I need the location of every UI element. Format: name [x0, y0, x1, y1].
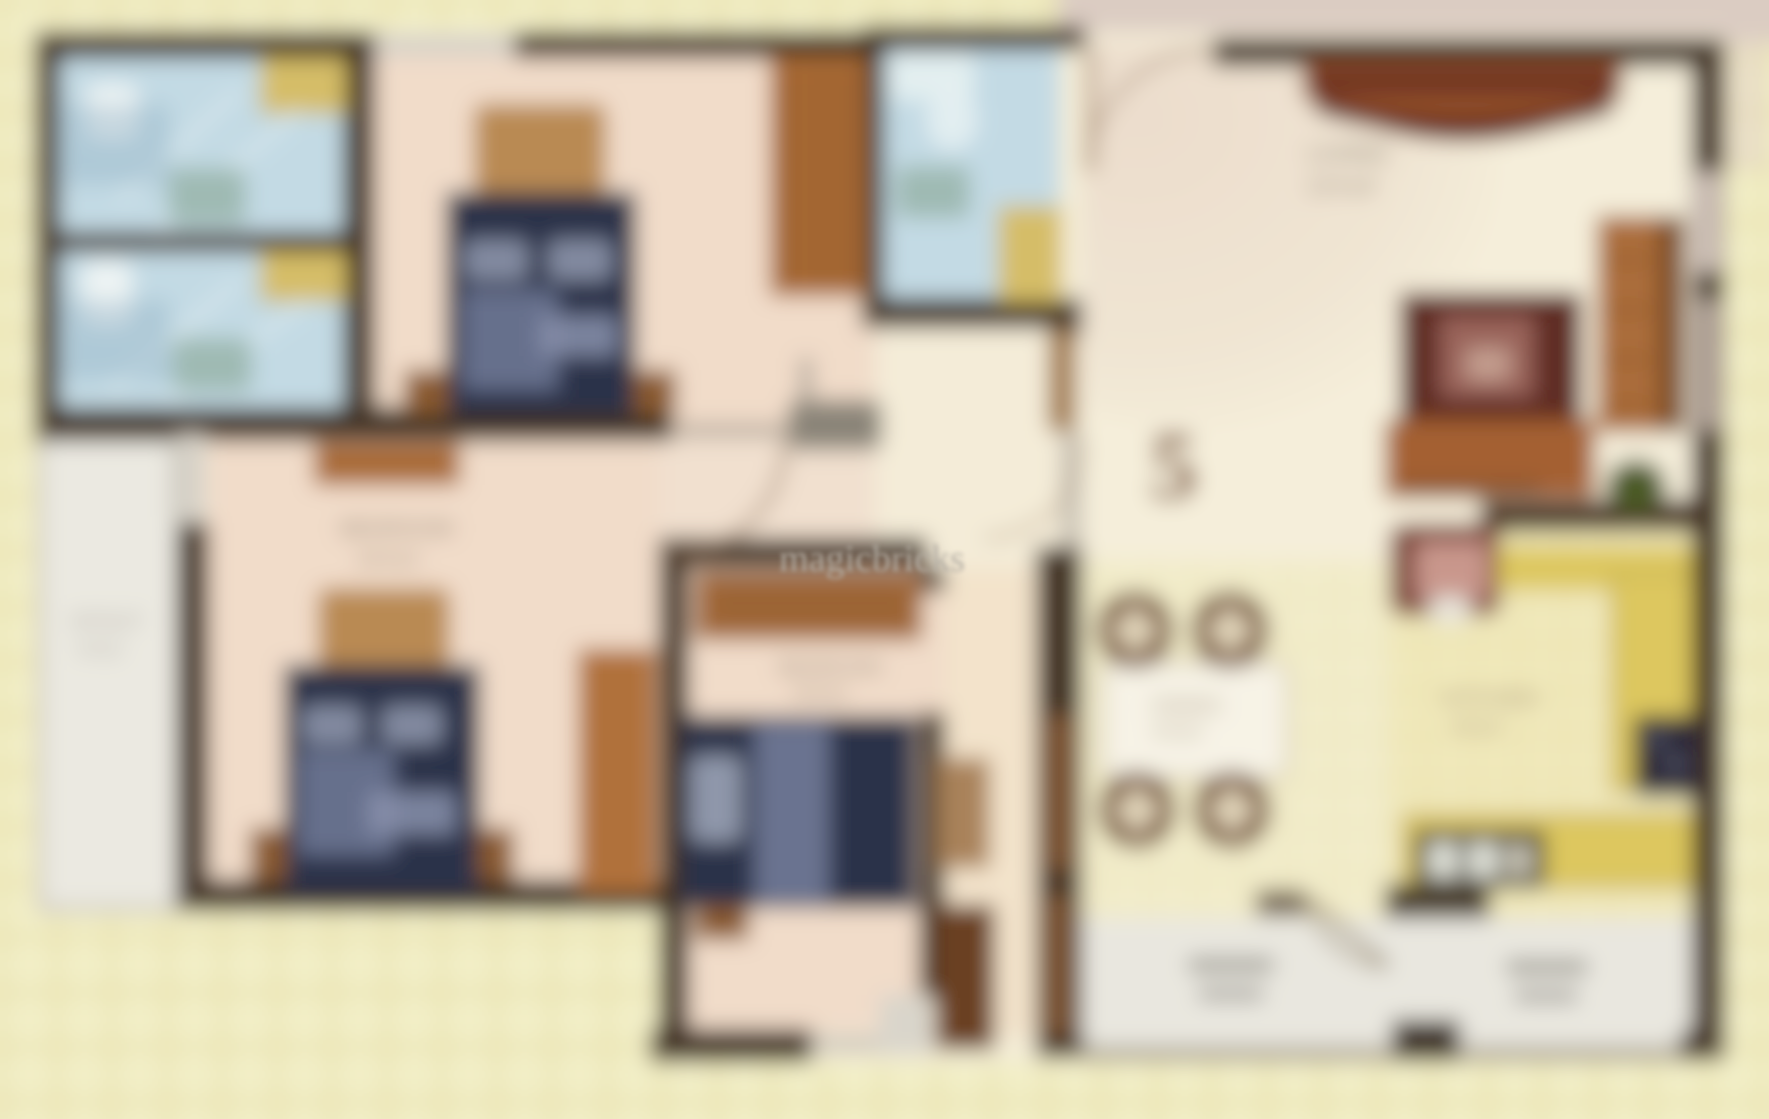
svg-text:BEDROOM: BEDROOM	[340, 516, 454, 541]
svg-text:DINING: DINING	[1152, 695, 1222, 717]
svg-text:4'X12': 4'X12'	[76, 640, 125, 660]
svg-text:13'X19': 13'X19'	[1306, 174, 1378, 199]
svg-text:SITOUT: SITOUT	[70, 611, 143, 633]
svg-text:magicbricks: magicbricks	[779, 538, 965, 580]
svg-text:BEDROOM: BEDROOM	[778, 657, 881, 679]
svg-text:5: 5	[1150, 413, 1198, 519]
svg-text:KITCHEN: KITCHEN	[1442, 686, 1539, 711]
svg-text:10'X12': 10'X12'	[356, 549, 421, 571]
svg-text:8'X10': 8'X10'	[1154, 722, 1203, 742]
svg-text:LIVING: LIVING	[1308, 140, 1390, 168]
svg-text:8'X13': 8'X13'	[1452, 718, 1504, 739]
svg-text:10'X11': 10'X11'	[792, 684, 850, 704]
